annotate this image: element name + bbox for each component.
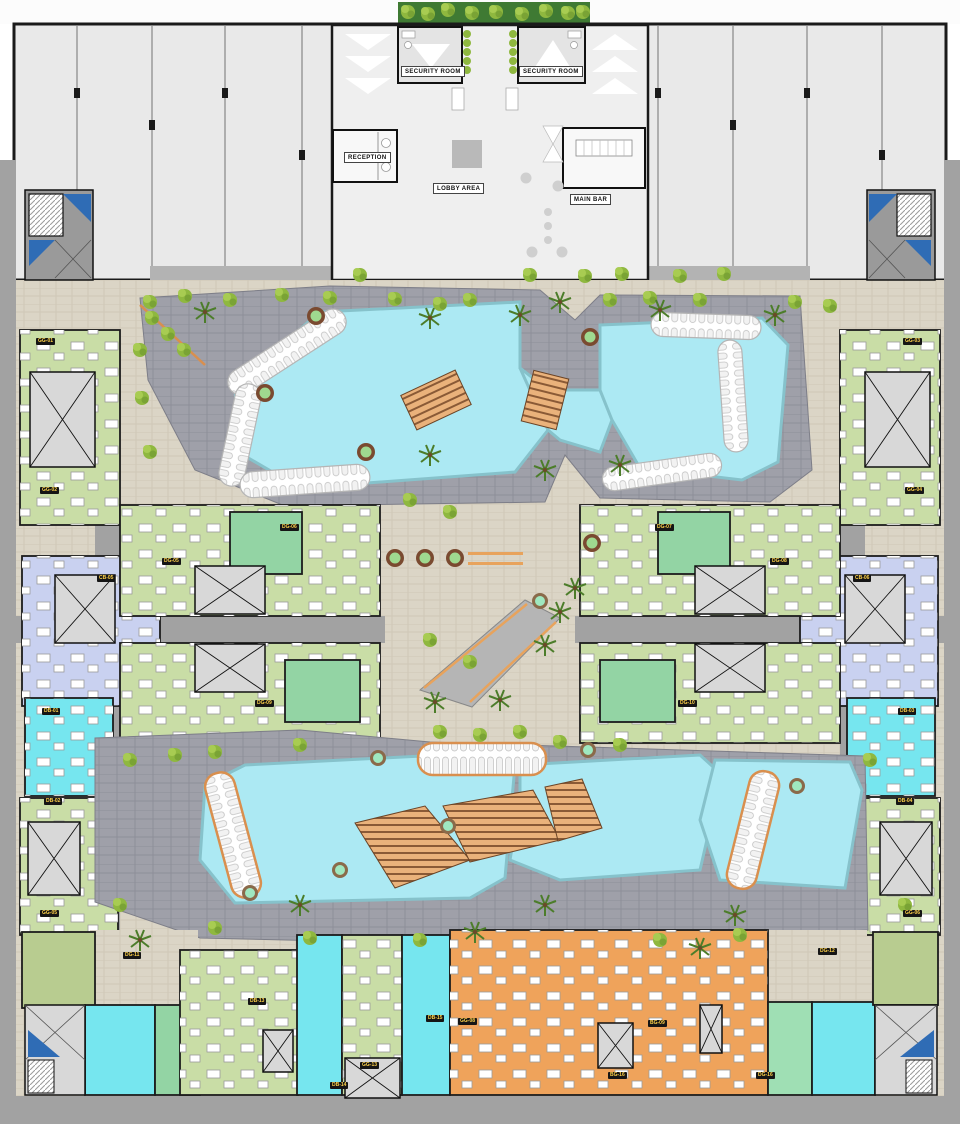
security-room-left-label: SECURITY ROOM xyxy=(401,66,465,77)
unit-badge: DG-06 xyxy=(280,524,299,531)
stair-core-bottom-right xyxy=(875,1005,937,1095)
unit-badge: DG-08 xyxy=(770,558,789,565)
unit-badge: CB-05 xyxy=(97,575,115,582)
stair-core-top-left xyxy=(25,190,93,280)
unit-badge: GG-03 xyxy=(903,338,922,345)
site-plan-canvas: SECURITY ROOM SECURITY ROOM RECEPTION LO… xyxy=(0,0,960,1124)
unit-badge: DB-15 xyxy=(426,1015,444,1022)
stair-core-top-right xyxy=(867,190,935,280)
unit-badge: GG-02 xyxy=(40,487,59,494)
unit-badge: BG-16 xyxy=(608,1072,627,1079)
lower-right-pool xyxy=(700,760,862,888)
lobby-column xyxy=(452,140,482,168)
unit-badge: DB-02 xyxy=(44,798,62,805)
top-road xyxy=(0,0,960,24)
unit-badge: DG-11 xyxy=(123,952,141,959)
unit-badge: DG-05 xyxy=(162,558,181,565)
stair-core-bottom-left xyxy=(25,1005,85,1095)
unit-badge: DG-07 xyxy=(655,524,674,531)
site-plan-drawing xyxy=(0,0,960,1124)
unit-badge: GG-08 xyxy=(458,1018,477,1025)
security-room-right-label: SECURITY ROOM xyxy=(519,66,583,77)
lobby-area-label: LOBBY AREA xyxy=(433,183,484,194)
unit-badge: DB-03 xyxy=(898,708,916,715)
unit-badge: GG-05 xyxy=(40,910,59,917)
upper-pool-area xyxy=(140,286,812,506)
unit-badge: DB-14 xyxy=(330,1082,348,1089)
unit-badge: DG-16 xyxy=(756,1072,775,1079)
unit-badge: BG-09 xyxy=(648,1020,667,1027)
unit-badge: DG-10 xyxy=(678,700,697,707)
unit-badge: GG-01 xyxy=(36,338,55,345)
unit-badge: DG-12 xyxy=(818,948,837,955)
unit-badge: DB-04 xyxy=(896,798,914,805)
unit-badge: DG-09 xyxy=(255,700,274,707)
unit-badge: DB-13 xyxy=(248,998,266,1005)
unit-badge: DB-01 xyxy=(42,708,60,715)
unit-badge: CB-06 xyxy=(853,575,871,582)
unit-badge: GG-04 xyxy=(905,487,924,494)
unit-badge: GG-13 xyxy=(360,1062,379,1069)
main-bar-label: MAIN BAR xyxy=(570,194,611,205)
unit-badge: GG-06 xyxy=(903,910,922,917)
reception-label: RECEPTION xyxy=(344,152,391,163)
